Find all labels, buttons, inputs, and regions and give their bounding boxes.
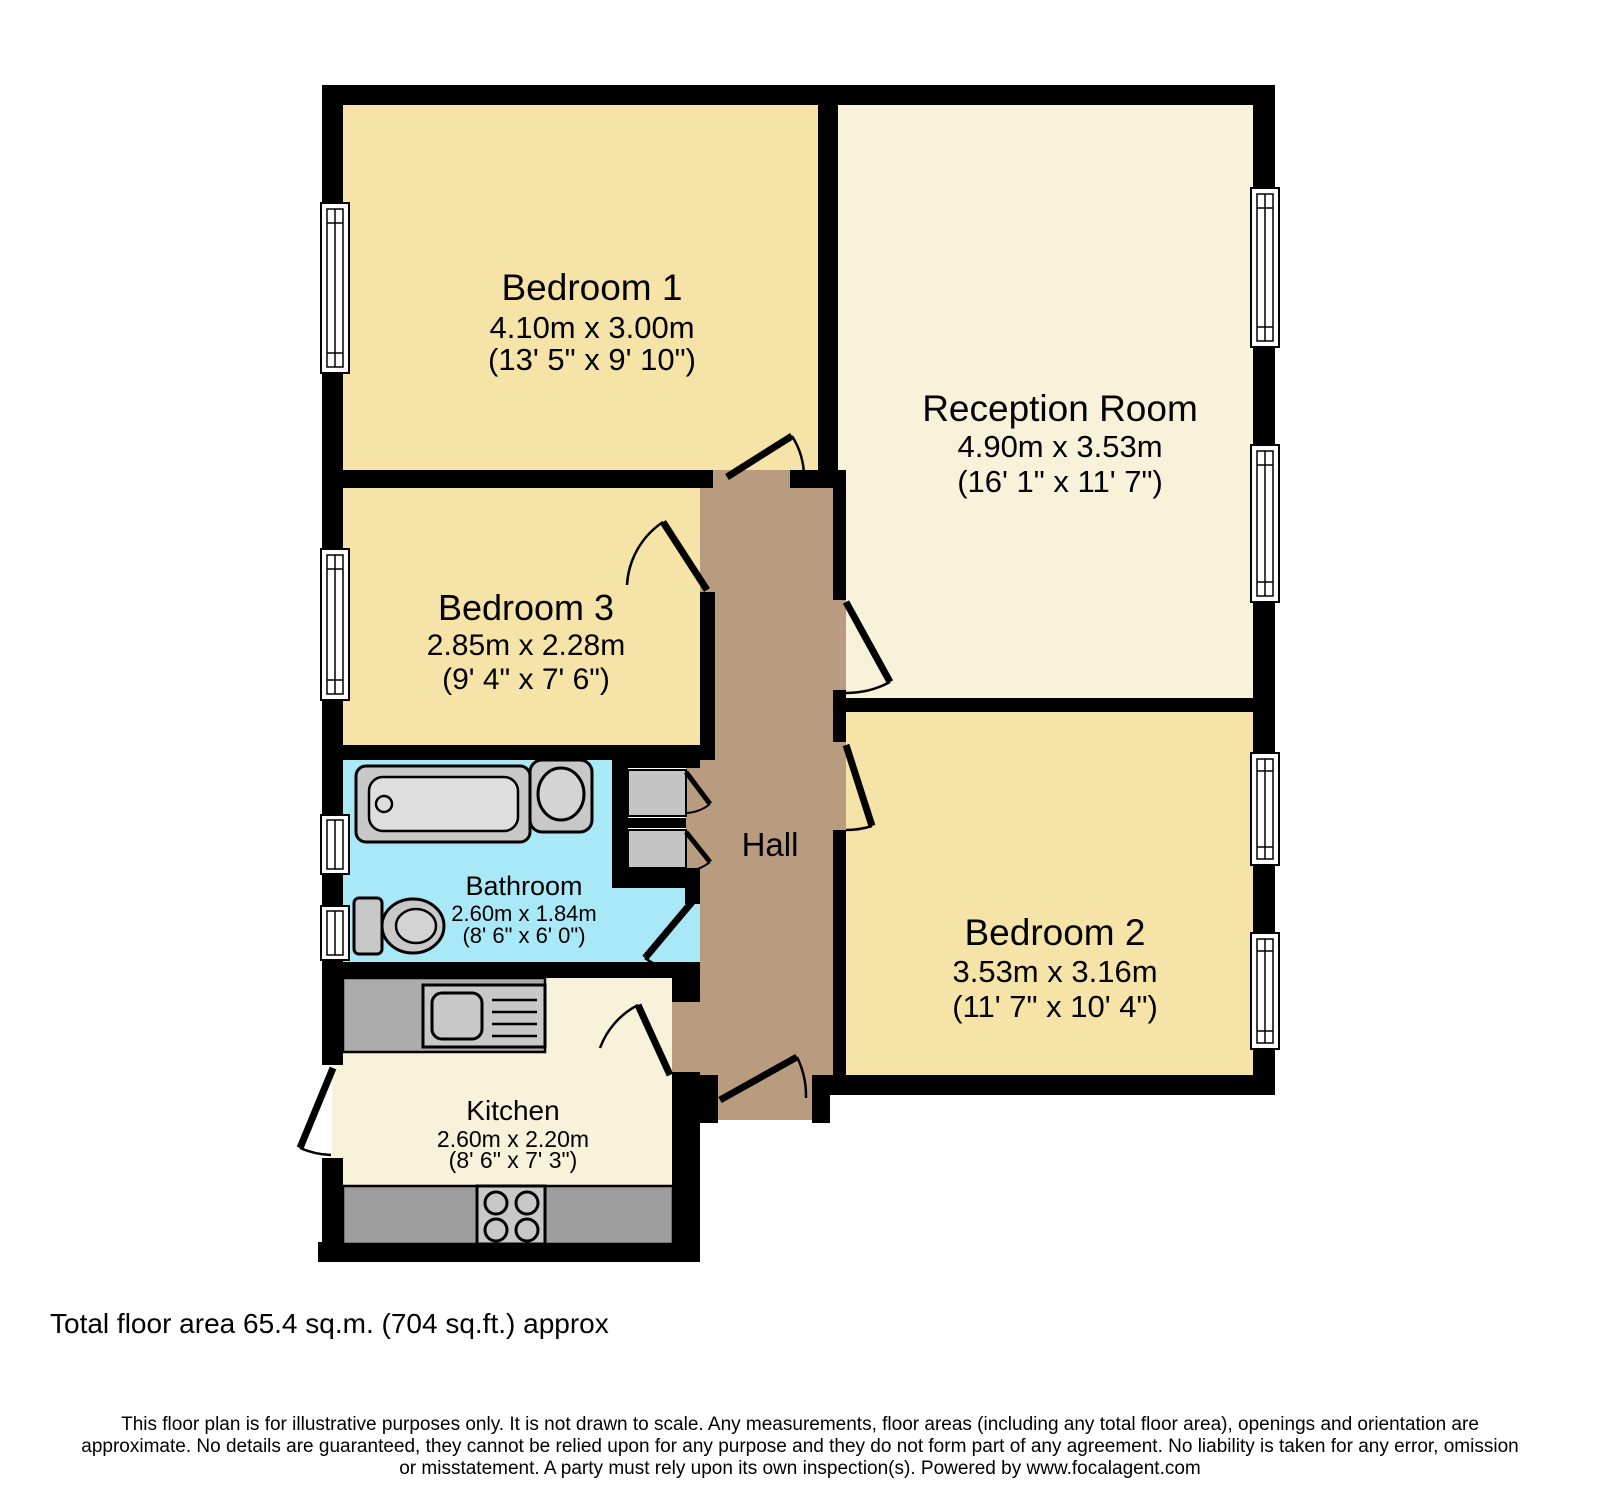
bedroom3-dims-imperial: (9' 4" x 7' 6") [442, 663, 610, 696]
door-kitchen-exterior [300, 1068, 333, 1155]
bathtub-icon [356, 766, 530, 842]
disclaimer-line-3: or misstatement. A party must rely upon … [399, 1458, 1201, 1479]
total-floor-area: Total floor area 65.4 sq.m. (704 sq.ft.)… [50, 1308, 609, 1339]
bedroom1-dims-imperial: (13' 5" x 9' 10") [488, 342, 696, 377]
bathroom-dims-imperial: (8' 6" x 6' 0") [462, 923, 585, 948]
toilet-icon [354, 898, 444, 954]
hob-icon [343, 1186, 673, 1244]
bedroom2-dims-imperial: (11' 7" x 10' 4") [952, 989, 1158, 1024]
bathroom-name: Bathroom [465, 871, 582, 901]
disclaimer-line-2: approximate. No details are guaranteed, … [81, 1436, 1518, 1457]
window-reception-1 [1251, 188, 1279, 347]
bedroom1-dims-metric: 4.10m x 3.00m [489, 310, 694, 345]
hall-name: Hall [742, 826, 799, 863]
window-bedroom3 [321, 549, 349, 700]
reception-dims-metric: 4.90m x 3.53m [957, 429, 1162, 464]
window-bedroom1 [321, 203, 349, 373]
floor-plan-page: Bedroom 1 4.10m x 3.00m (13' 5" x 9' 10"… [0, 0, 1600, 1501]
window-bedroom2-2 [1251, 933, 1279, 1049]
bedroom2-name: Bedroom 2 [965, 912, 1146, 953]
kitchen-name: Kitchen [466, 1095, 559, 1126]
entrance-threshold [718, 1075, 812, 1120]
hall-floor [700, 470, 846, 1095]
disclaimer-line-1: This floor plan is for illustrative purp… [121, 1414, 1479, 1435]
reception-dims-imperial: (16' 1" x 11' 7") [957, 464, 1163, 499]
kitchen-dims-imperial: (8' 6" x 7' 3") [449, 1147, 578, 1173]
bedroom2-floor [838, 702, 1263, 1085]
bedroom3-dims-metric: 2.85m x 2.28m [427, 629, 625, 662]
window-bathroom-1 [321, 815, 349, 874]
bedroom2-dims-metric: 3.53m x 3.16m [952, 954, 1157, 989]
kitchen-sink-icon [343, 978, 545, 1052]
kitchen-doorway [672, 1002, 700, 1072]
cupboard-icon [628, 830, 686, 868]
reception-name: Reception Room [922, 388, 1198, 429]
bedroom3-name: Bedroom 3 [438, 587, 614, 628]
window-reception-2 [1251, 445, 1279, 602]
basin-icon [530, 760, 592, 832]
bedroom1-name: Bedroom 1 [502, 267, 683, 308]
cupboard-icon [628, 770, 686, 816]
window-bedroom2-1 [1251, 753, 1279, 865]
floor-plan: Bedroom 1 4.10m x 3.00m (13' 5" x 9' 10"… [0, 0, 1600, 1501]
window-bathroom-2 [321, 906, 349, 960]
